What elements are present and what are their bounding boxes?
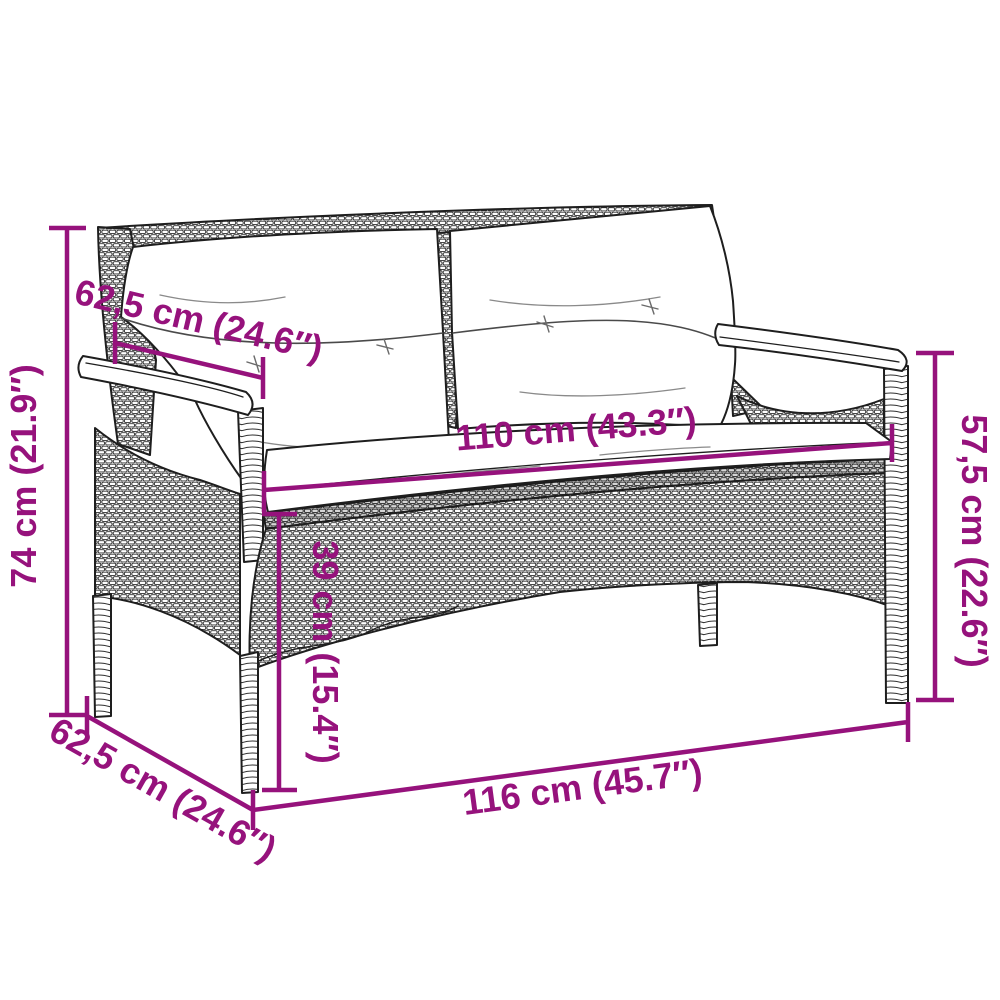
dim-overall-height-label: 74 cm (21.9″): [3, 364, 44, 587]
diagram-canvas: 74 cm (21.9″) 62,5 cm (24.6″) 110 cm (43…: [0, 0, 1000, 1000]
dim-backrest-height-label: 57,5 cm (22.6″): [954, 414, 995, 667]
rear-right-leg: [698, 583, 717, 646]
left-side-panel: [95, 428, 240, 655]
rear-left-leg: [93, 594, 111, 717]
front-right-post: [884, 366, 908, 703]
back-cushion-right: [450, 206, 735, 429]
right-armrest: [715, 324, 906, 371]
left-arm-support: [238, 408, 263, 562]
bench-drawing: [78, 205, 908, 793]
dim-overall-width: 116 cm (45.7″): [253, 702, 908, 823]
dim-overall-width-label: 116 cm (45.7″): [460, 750, 705, 823]
dim-backrest-height: 57,5 cm (22.6″): [916, 353, 995, 700]
front-left-leg: [240, 652, 258, 793]
dimension-diagram: 74 cm (21.9″) 62,5 cm (24.6″) 110 cm (43…: [0, 0, 1000, 1000]
dim-seat-height-label: 39 cm (15.4″): [305, 540, 346, 763]
